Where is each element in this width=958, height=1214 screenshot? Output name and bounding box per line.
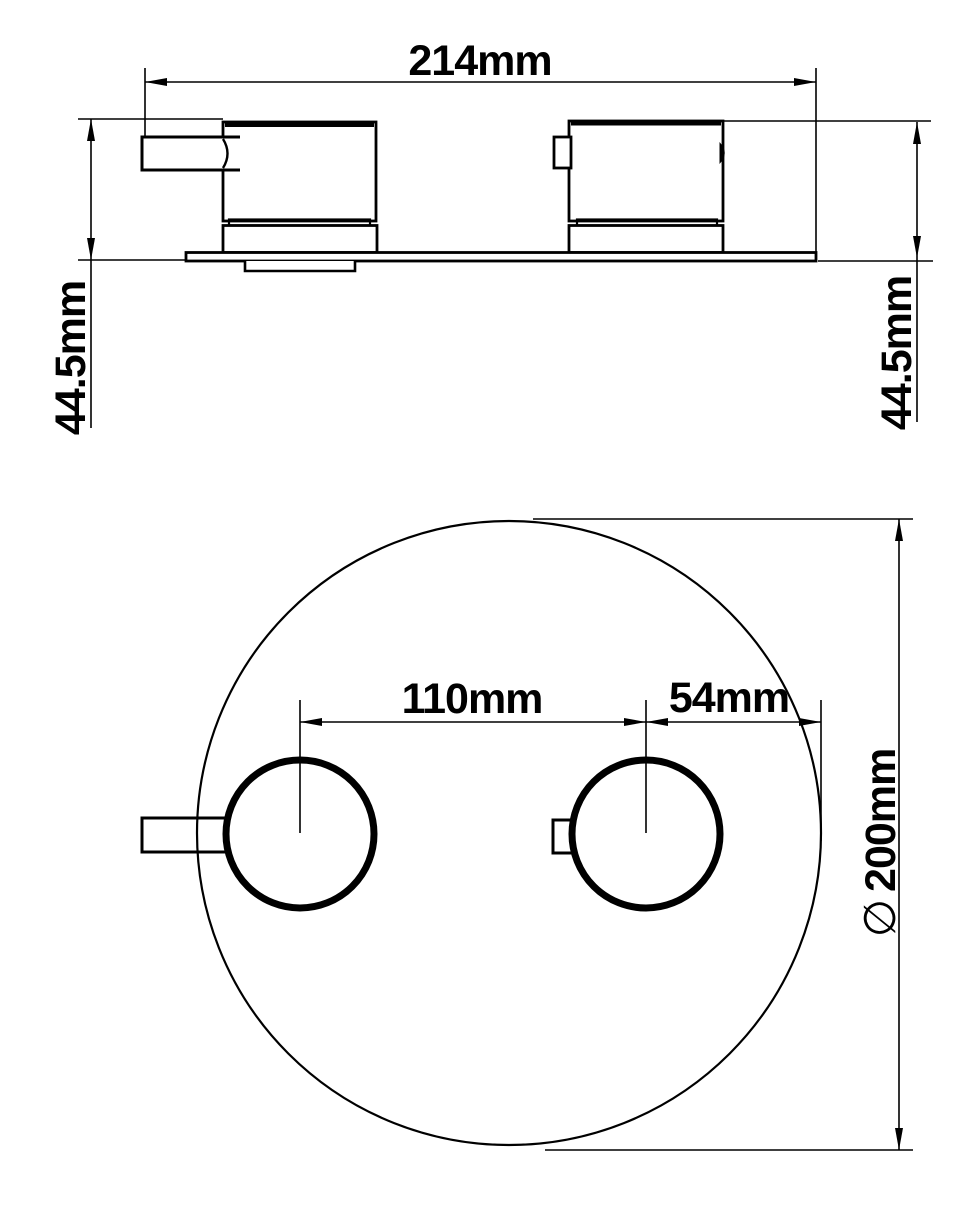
dim-center-to-edge: 54mm xyxy=(646,674,821,726)
dim-label-height-right: 44.5mm xyxy=(873,276,921,430)
dim-label-overall-width: 214mm xyxy=(408,37,551,85)
arrowhead-right xyxy=(794,78,816,86)
right-handle-front xyxy=(554,121,725,253)
arrowhead-left xyxy=(646,718,668,726)
arrowhead-down xyxy=(913,236,921,258)
left-handle-base xyxy=(223,226,377,253)
arrowhead-up xyxy=(895,519,903,541)
arrowhead-down xyxy=(895,1128,903,1150)
arrowhead-up xyxy=(87,119,95,141)
arrowhead-left xyxy=(300,718,322,726)
deck-plate-front xyxy=(186,253,816,262)
dim-height-right: 44.5mm xyxy=(873,122,921,430)
arrowhead-up xyxy=(913,122,921,144)
right-handle-base xyxy=(569,226,723,253)
left-handle-body xyxy=(223,122,376,221)
drawing-svg: 214mm 44.5mm 44.5mm xyxy=(0,0,958,1214)
technical-drawing-page: 214mm 44.5mm 44.5mm xyxy=(0,0,958,1214)
dim-height-left: 44.5mm xyxy=(47,119,95,435)
diameter-value: 200mm xyxy=(857,749,905,892)
dim-label-handle-spacing: 110mm xyxy=(402,675,543,723)
plan-view: 110mm 54mm ∅200mm xyxy=(142,519,913,1150)
left-handle-front xyxy=(142,122,377,253)
arrowhead-down xyxy=(87,238,95,260)
dim-overall-width: 214mm xyxy=(145,37,816,86)
right-handle-tab xyxy=(554,137,571,168)
dim-handle-spacing: 110mm xyxy=(300,675,646,726)
dim-label-plate-diameter: ∅200mm xyxy=(856,749,905,938)
arrowhead-right xyxy=(799,718,821,726)
dim-label-height-left: 44.5mm xyxy=(47,281,95,435)
right-handle-body xyxy=(569,121,723,221)
front-view: 214mm 44.5mm 44.5mm xyxy=(47,37,933,435)
arrowhead-right xyxy=(624,718,646,726)
under-plate-tab xyxy=(245,261,355,271)
dim-plate-diameter: ∅200mm xyxy=(856,519,905,1150)
arrowhead-left xyxy=(145,78,167,86)
diameter-symbol: ∅ xyxy=(856,900,905,937)
dim-label-center-to-edge: 54mm xyxy=(669,674,789,722)
